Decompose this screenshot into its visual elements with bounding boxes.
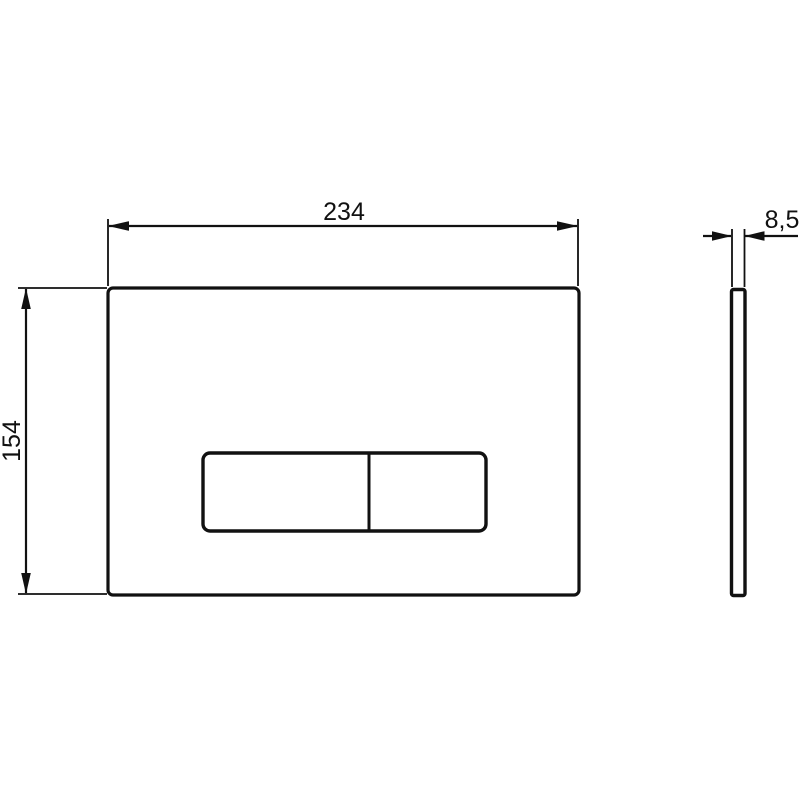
front-view	[108, 288, 579, 595]
thickness-dimension: 8,5	[703, 206, 799, 287]
technical-drawing-canvas: 234 154 8,5	[0, 0, 800, 800]
arrowhead-inward-right-icon	[745, 231, 765, 241]
width-dimension: 234	[108, 198, 578, 286]
arrowhead-inward-left-icon	[712, 231, 732, 241]
height-dimension: 154	[0, 288, 107, 594]
button-panel-outline	[203, 453, 486, 531]
thickness-dimension-label: 8,5	[765, 206, 800, 234]
flush-plate-technical-drawing: 234 154 8,5	[0, 0, 800, 800]
arrowhead-left-icon	[108, 221, 129, 231]
arrowhead-bottom-icon	[21, 573, 31, 594]
width-dimension-label: 234	[323, 198, 365, 226]
arrowhead-right-icon	[557, 221, 578, 231]
side-view	[732, 290, 746, 596]
height-dimension-label: 154	[0, 420, 26, 462]
plate-outline	[108, 288, 579, 595]
side-profile-outline	[732, 290, 746, 596]
arrowhead-top-icon	[21, 288, 31, 309]
